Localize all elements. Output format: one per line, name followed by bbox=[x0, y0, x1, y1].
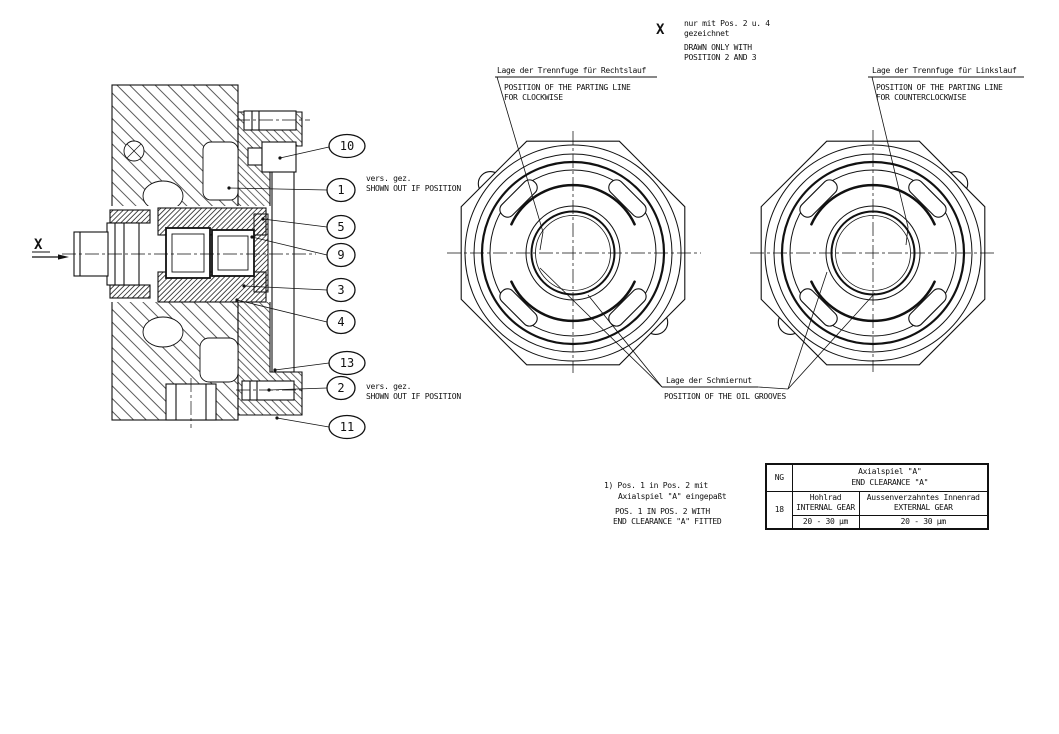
end-clearance-table: NG Axialspiel "A" END CLEARANCE "A" 18 H… bbox=[765, 463, 989, 530]
cw-label-en1: POSITION OF THE PARTING LINE bbox=[504, 83, 631, 92]
table-col1-value: 20 - 30 µm bbox=[792, 515, 859, 529]
note-en2: POSITION 2 AND 3 bbox=[684, 53, 757, 62]
table-title-de: Axialspiel "A" bbox=[794, 467, 987, 477]
cover-plate bbox=[272, 146, 294, 372]
svg-text:vers. gez.: vers. gez. bbox=[366, 382, 411, 391]
svg-text:vers. gez.: vers. gez. bbox=[366, 174, 411, 183]
note-x-marker: X bbox=[656, 22, 665, 38]
balloon-9: 9 bbox=[327, 244, 355, 267]
footnote: 1) Pos. 1 in Pos. 2 mit Axialspiel "A" e… bbox=[604, 481, 727, 526]
svg-text:SHOWN OUT IF POSITION: SHOWN OUT IF POSITION bbox=[366, 184, 461, 193]
svg-text:13: 13 bbox=[340, 356, 354, 370]
svg-text:SHOWN OUT IF POSITION: SHOWN OUT IF POSITION bbox=[366, 392, 461, 401]
svg-text:1: 1 bbox=[337, 183, 344, 197]
ccw-label-de: Lage der Trennfuge für Linkslauf bbox=[872, 66, 1017, 75]
balloon-3: 3 bbox=[327, 279, 355, 302]
table-col1-de: Hohlrad bbox=[794, 493, 858, 503]
svg-text:5: 5 bbox=[337, 220, 344, 234]
table-col2-value: 20 - 30 µm bbox=[859, 515, 988, 529]
table-col1-header: Hohlrad INTERNAL GEAR bbox=[792, 491, 859, 515]
svg-text:9: 9 bbox=[337, 248, 344, 262]
view-arrowhead bbox=[58, 254, 69, 259]
svg-text:2: 2 bbox=[337, 381, 344, 395]
svg-text:11: 11 bbox=[340, 420, 354, 434]
balloon-10: 10 bbox=[329, 135, 365, 158]
clockwise-face-view bbox=[447, 131, 701, 373]
footnote-en2: END CLEARANCE "A" FITTED bbox=[613, 517, 722, 526]
section-view bbox=[74, 85, 302, 420]
footnote-de1: 1) Pos. 1 in Pos. 2 mit bbox=[604, 481, 708, 490]
balloon-5: 5 bbox=[327, 216, 355, 239]
ccw-label-en1: POSITION OF THE PARTING LINE bbox=[876, 83, 1003, 92]
internal-gear bbox=[166, 228, 210, 278]
note-en1: DRAWN ONLY WITH bbox=[684, 43, 752, 52]
oil-label-de: Lage der Schmiernut bbox=[666, 376, 752, 385]
balloon-2: 2 bbox=[327, 377, 355, 400]
note-de1: nur mit Pos. 2 u. 4 bbox=[684, 19, 770, 28]
table-col1-en: INTERNAL GEAR bbox=[794, 503, 858, 513]
offset-note-bottom: vers. gez. SHOWN OUT IF POSITION bbox=[366, 382, 461, 401]
view-x-label: X bbox=[34, 237, 43, 253]
balloon-11: 11 bbox=[329, 416, 365, 439]
table-col2-en: EXTERNAL GEAR bbox=[861, 503, 987, 513]
balloon-4: 4 bbox=[327, 311, 355, 334]
housing-pocket-lower bbox=[143, 317, 183, 347]
oil-label-en: POSITION OF THE OIL GROOVES bbox=[664, 392, 786, 401]
table-title-en: END CLEARANCE "A" bbox=[794, 478, 987, 488]
svg-text:3: 3 bbox=[337, 283, 344, 297]
ccw-label-en2: FOR COUNTERCLOCKWISE bbox=[876, 93, 967, 102]
drawing-canvas: X 10 1 5 9 3 4 13 2 11 vers. gez. S bbox=[0, 0, 1059, 734]
table-col2-de: Aussenverzahntes Innenrad bbox=[861, 493, 987, 503]
note-top-right: X nur mit Pos. 2 u. 4 gezeichnet DRAWN O… bbox=[656, 19, 770, 62]
table-col2-header: Aussenverzahntes Innenrad EXTERNAL GEAR bbox=[859, 491, 988, 515]
note-de2: gezeichnet bbox=[684, 29, 730, 38]
svg-text:10: 10 bbox=[340, 139, 354, 153]
cw-label-de: Lage der Trennfuge für Rechtslauf bbox=[497, 66, 647, 75]
cw-label-en2: FOR CLOCKWISE bbox=[504, 93, 563, 102]
balloon-callouts: 10 1 5 9 3 4 13 2 11 bbox=[327, 135, 365, 439]
balloon-13: 13 bbox=[329, 352, 365, 375]
table-ng-value: 18 bbox=[766, 491, 792, 529]
view-direction-marker: X bbox=[32, 237, 69, 260]
table-ng-header: NG bbox=[766, 464, 792, 491]
balloon-1: 1 bbox=[327, 179, 355, 202]
offset-note-top: vers. gez. SHOWN OUT IF POSITION bbox=[366, 174, 461, 193]
footnote-de2: Axialspiel "A" eingepaßt bbox=[618, 492, 727, 501]
counterclockwise-face-view bbox=[750, 130, 997, 372]
svg-text:4: 4 bbox=[337, 315, 344, 329]
footnote-en1: POS. 1 IN POS. 2 WITH bbox=[615, 507, 710, 516]
table-title-cell: Axialspiel "A" END CLEARANCE "A" bbox=[792, 464, 988, 491]
drawing-sheet: X 10 1 5 9 3 4 13 2 11 vers. gez. S bbox=[0, 0, 1059, 734]
